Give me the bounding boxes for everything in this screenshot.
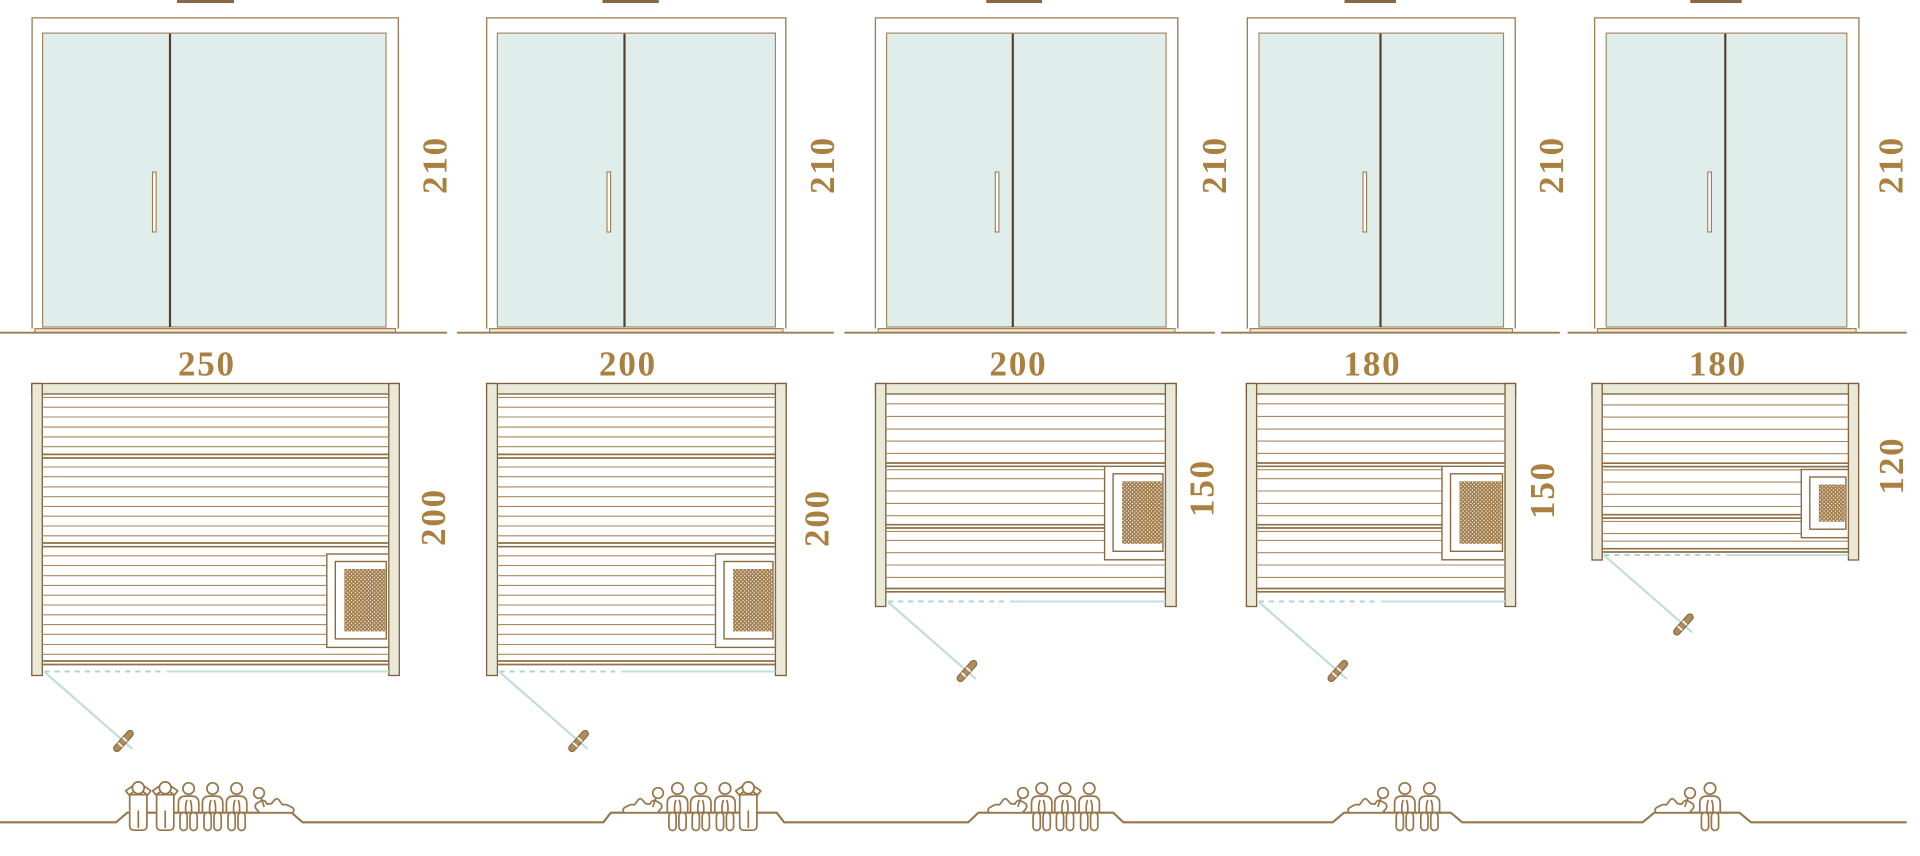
- svg-text:180: 180: [1344, 345, 1402, 384]
- svg-text:200: 200: [599, 345, 657, 384]
- svg-text:120: 120: [1872, 437, 1911, 495]
- svg-text:250: 250: [178, 345, 236, 384]
- svg-text:200: 200: [798, 489, 837, 547]
- svg-text:150: 150: [1183, 459, 1222, 517]
- svg-text:210: 210: [1195, 136, 1234, 194]
- svg-text:210: 210: [416, 136, 455, 194]
- svg-text:200: 200: [990, 345, 1048, 384]
- svg-text:210: 210: [1532, 136, 1571, 194]
- svg-text:210: 210: [803, 136, 842, 194]
- svg-text:200: 200: [414, 488, 453, 546]
- svg-text:180: 180: [1689, 345, 1747, 384]
- svg-text:210: 210: [1872, 136, 1911, 194]
- svg-text:150: 150: [1523, 461, 1562, 519]
